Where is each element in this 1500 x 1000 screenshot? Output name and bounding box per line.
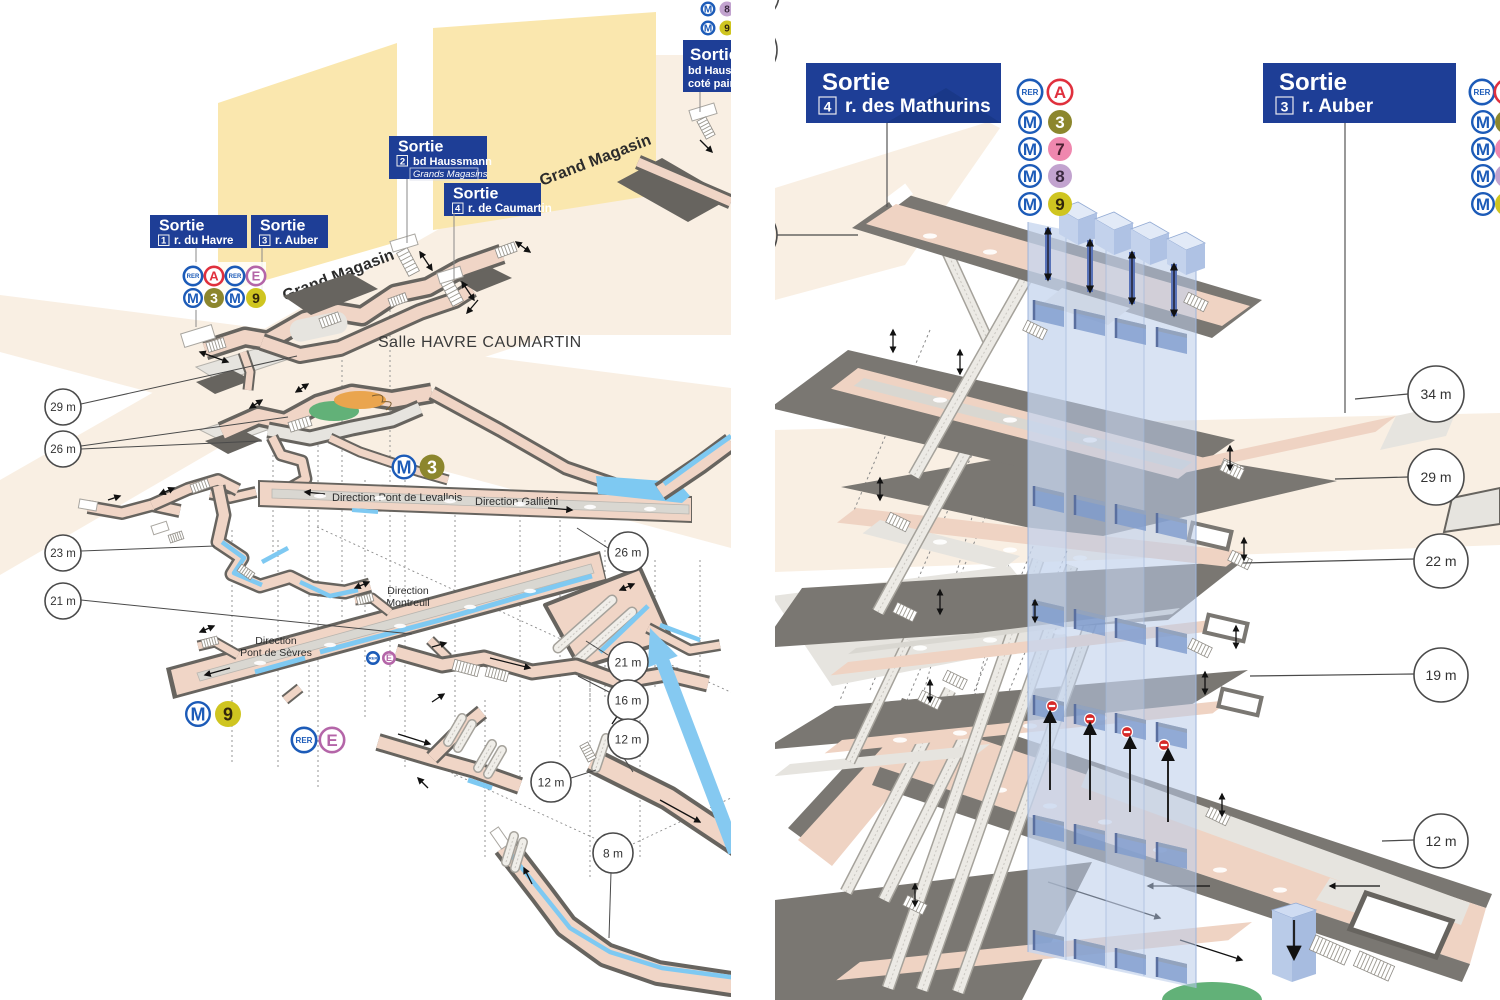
- svg-text:M: M: [397, 458, 412, 478]
- svg-text:4: 4: [824, 99, 832, 115]
- svg-text:Sortie: Sortie: [260, 218, 305, 235]
- svg-text:E: E: [386, 653, 392, 663]
- svg-text:Sortie: Sortie: [453, 186, 498, 203]
- svg-text:RER: RER: [1022, 88, 1039, 97]
- svg-text:Grands Magasins: Grands Magasins: [413, 169, 488, 180]
- svg-text:26 m: 26 m: [615, 545, 642, 559]
- svg-text:M: M: [187, 290, 199, 306]
- svg-text:M: M: [1023, 113, 1037, 132]
- svg-text:8 m: 8 m: [603, 846, 623, 860]
- svg-text:M: M: [1476, 195, 1490, 214]
- svg-text:Sortie: Sortie: [398, 139, 443, 156]
- svg-text:M: M: [191, 705, 206, 725]
- svg-text:12 m: 12 m: [1425, 833, 1456, 849]
- svg-text:9: 9: [724, 24, 730, 35]
- svg-text:M: M: [229, 290, 241, 306]
- svg-text:29 m: 29 m: [1420, 469, 1451, 485]
- svg-text:bd Haussmann: bd Haussmann: [413, 156, 492, 168]
- svg-text:1: 1: [161, 236, 167, 247]
- svg-text:3: 3: [1055, 113, 1064, 132]
- svg-text:Direction: Direction: [255, 635, 297, 647]
- svg-text:29 m: 29 m: [50, 402, 76, 414]
- svg-text:16 m: 16 m: [615, 693, 642, 707]
- svg-text:E: E: [252, 269, 261, 284]
- svg-text:RER: RER: [369, 655, 378, 660]
- svg-text:Direction Pont de Levallois: Direction Pont de Levallois: [332, 492, 463, 504]
- svg-text:Pont de Sèvres: Pont de Sèvres: [240, 647, 312, 659]
- svg-text:coté pair: coté pair: [688, 78, 735, 90]
- svg-text:M: M: [704, 5, 712, 16]
- svg-text:9: 9: [223, 705, 233, 725]
- svg-text:12 m: 12 m: [538, 775, 565, 789]
- svg-text:3: 3: [262, 236, 267, 247]
- svg-text:9: 9: [252, 290, 260, 306]
- svg-text:2: 2: [400, 157, 405, 168]
- svg-text:Direction: Direction: [387, 585, 429, 597]
- svg-text:r. de Caumartin: r. de Caumartin: [468, 203, 552, 215]
- svg-text:Sortie: Sortie: [1279, 69, 1347, 96]
- svg-text:RER: RER: [1474, 88, 1491, 97]
- svg-text:3: 3: [427, 458, 437, 478]
- svg-text:19 m: 19 m: [1425, 667, 1456, 683]
- svg-text:3: 3: [210, 290, 218, 306]
- svg-text:M: M: [1023, 140, 1037, 159]
- svg-text:8: 8: [1055, 167, 1064, 186]
- svg-text:A: A: [1054, 83, 1066, 102]
- svg-text:r. du Havre: r. du Havre: [174, 235, 233, 247]
- svg-text:r. Auber: r. Auber: [1302, 96, 1374, 117]
- svg-text:M: M: [1476, 140, 1490, 159]
- svg-text:bd Hauss: bd Hauss: [688, 65, 738, 77]
- svg-text:4: 4: [455, 204, 461, 215]
- svg-text:RER: RER: [229, 274, 242, 280]
- svg-text:M: M: [1476, 113, 1490, 132]
- svg-text:Direction Galliéni: Direction Galliéni: [475, 496, 558, 508]
- svg-text:21 m: 21 m: [615, 655, 642, 669]
- svg-text:M: M: [1023, 195, 1037, 214]
- svg-text:23 m: 23 m: [50, 548, 76, 560]
- svg-text:E: E: [326, 731, 337, 750]
- svg-text:RER: RER: [296, 736, 313, 745]
- svg-text:Montreuil: Montreuil: [386, 597, 429, 609]
- svg-text:r. des Mathurins: r. des Mathurins: [845, 96, 991, 117]
- svg-text:r. Auber: r. Auber: [275, 235, 319, 247]
- svg-text:M: M: [1023, 167, 1037, 186]
- svg-text:7: 7: [1055, 140, 1064, 159]
- svg-text:Sortie: Sortie: [690, 45, 738, 64]
- svg-text:Sortie: Sortie: [159, 218, 204, 235]
- svg-text:26 m: 26 m: [50, 444, 76, 456]
- svg-text:RER: RER: [187, 274, 200, 280]
- svg-text:8: 8: [724, 5, 730, 16]
- svg-text:21 m: 21 m: [50, 596, 76, 608]
- svg-text:M: M: [704, 24, 712, 35]
- svg-text:A: A: [209, 269, 219, 284]
- svg-text:M: M: [1476, 167, 1490, 186]
- svg-text:34 m: 34 m: [1420, 386, 1451, 402]
- svg-text:3: 3: [1281, 99, 1289, 115]
- svg-text:Salle HAVRE CAUMARTIN: Salle HAVRE CAUMARTIN: [378, 334, 582, 351]
- svg-text:22 m: 22 m: [1425, 553, 1456, 569]
- svg-text:Sortie: Sortie: [822, 69, 890, 96]
- svg-text:9: 9: [1055, 195, 1064, 214]
- svg-text:12 m: 12 m: [615, 732, 642, 746]
